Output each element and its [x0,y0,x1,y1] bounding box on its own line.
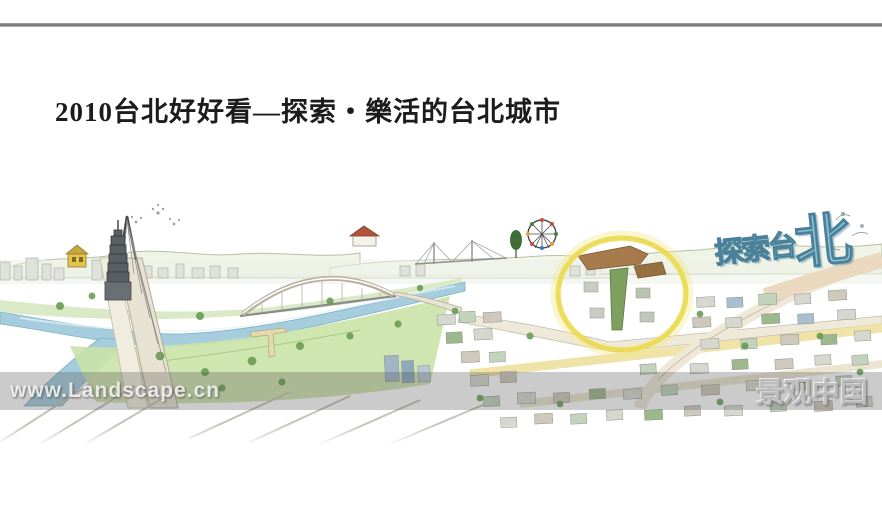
art-text-north: 北 [789,191,855,281]
fireworks [131,204,180,226]
top-divider [0,23,882,27]
watermark-landscape-china: 景观中国 [756,371,868,411]
watermark-landscape-url: www.Landscape.cn [10,379,220,403]
slide-title: 2010台北好好看—探索・樂活的台北城市 [55,90,561,129]
art-text-explore: 探索台 [712,222,797,272]
red-roof-building [350,226,379,246]
ferris-wheel [510,218,558,258]
watermark-band: www.Landscape.cn 景观中国 [0,372,882,410]
stylized-taipei-art-text: 探索台 北 [710,199,855,289]
city-illustration: 探索台 北 www.Landscape.cn 景观中国 [0,196,882,446]
yellow-house [66,245,88,267]
taipei-101-tower [105,220,131,300]
